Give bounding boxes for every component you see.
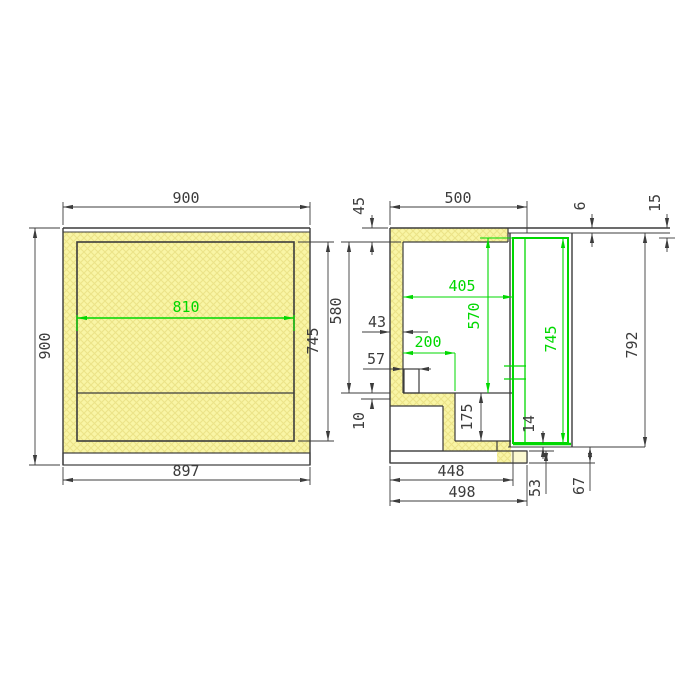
technical-drawing-canvas: 810 900 900 897 745 bbox=[0, 0, 700, 700]
dim-front-width-bottom-label: 897 bbox=[172, 462, 199, 480]
front-insulation-frame bbox=[63, 232, 310, 453]
side-upper-floor-insulation bbox=[390, 393, 455, 406]
dim-door-height-label: 792 bbox=[623, 331, 641, 358]
dim-front-shelf-width-label: 810 bbox=[172, 298, 199, 316]
dim-bottom-clearance-label: 67 bbox=[570, 477, 588, 495]
side-step-height-dim-group: 175 bbox=[458, 393, 481, 441]
dim-side-interior-depth-label: 405 bbox=[448, 277, 475, 295]
dim-side-top-overhang-label: 15 bbox=[646, 194, 664, 212]
side-left-wall-insulation bbox=[390, 242, 403, 393]
dim-side-top-thickness-label: 45 bbox=[350, 197, 368, 215]
drawing-svg: 810 900 900 897 745 bbox=[0, 0, 700, 700]
dim-side-recess-depth-label: 200 bbox=[414, 333, 441, 351]
dim-front-interior-height-label: 745 bbox=[304, 327, 322, 354]
dim-side-step-height-label: 175 bbox=[458, 403, 476, 430]
side-recess-depth-dim-group: 200 bbox=[403, 333, 455, 391]
dim-door-bottom-gap-label: 14 bbox=[520, 415, 538, 433]
dim-side-top-gap-label: 6 bbox=[571, 201, 589, 210]
dim-front-width-top-label: 900 bbox=[172, 189, 199, 207]
bottom-clearance-dim-group: 67 bbox=[570, 447, 590, 495]
side-opening-height-dim-group: 570 bbox=[465, 238, 513, 393]
front-view: 810 900 900 897 745 bbox=[29, 189, 334, 485]
front-height-dim-group: 900 bbox=[29, 228, 60, 465]
side-top-overhang-dim-group: 15 bbox=[646, 194, 675, 252]
door-inner-height-dim-group: 745 bbox=[542, 238, 563, 443]
side-floor-lip-dim-group: 10 bbox=[350, 383, 390, 430]
dim-side-interior-height-label: 580 bbox=[327, 297, 345, 324]
side-step-wall-insulation bbox=[443, 406, 455, 451]
dim-side-floor-lip-label: 10 bbox=[350, 412, 368, 430]
dim-side-depth-top-label: 500 bbox=[444, 189, 471, 207]
dim-side-depth-outer-bottom-label: 498 bbox=[448, 483, 475, 501]
dim-side-wall-thickness-label: 43 bbox=[368, 313, 386, 331]
side-front-sill-insulation bbox=[497, 441, 511, 463]
dim-side-opening-height-label: 570 bbox=[465, 302, 483, 329]
dim-plinth-height-label: 53 bbox=[526, 479, 544, 497]
dim-door-inner-height-label: 745 bbox=[542, 325, 560, 352]
side-top-insulation bbox=[390, 228, 508, 242]
dim-front-height-label: 900 bbox=[36, 332, 54, 359]
side-view: 45 500 580 43 405 570 bbox=[327, 189, 675, 506]
door-height-dim-group: 792 bbox=[623, 233, 645, 447]
front-width-top-dim-group: 900 bbox=[63, 189, 310, 225]
side-interior-depth-dim-group: 405 bbox=[403, 277, 513, 297]
side-depth-top-dim-group: 500 bbox=[390, 189, 527, 233]
dim-side-drain-offset-label: 57 bbox=[367, 350, 385, 368]
dim-side-depth-inner-bottom-label: 448 bbox=[437, 462, 464, 480]
side-drain-box bbox=[404, 369, 419, 393]
door-seal-marks bbox=[504, 366, 526, 379]
side-top-gap-dim-group: 6 bbox=[571, 201, 592, 247]
